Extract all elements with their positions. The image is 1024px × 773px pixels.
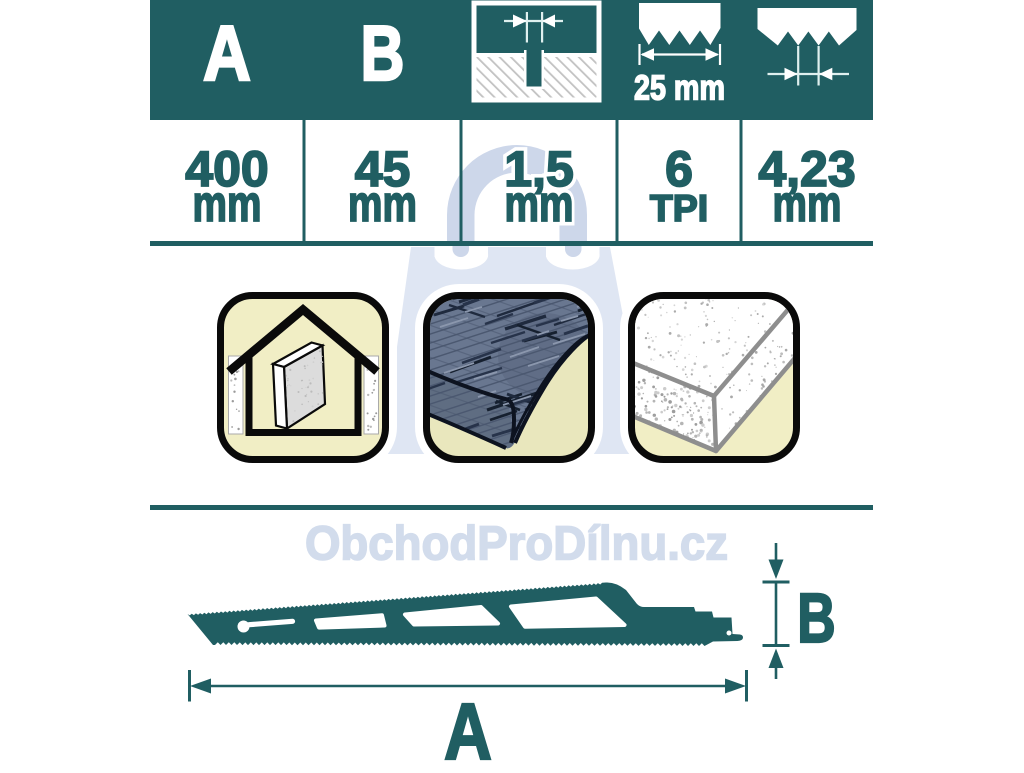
svg-text:mm: mm xyxy=(773,175,842,232)
svg-text:A: A xyxy=(203,9,251,97)
svg-text:ObchodProDílnu.cz: ObchodProDílnu.cz xyxy=(305,518,728,571)
svg-text:mm: mm xyxy=(193,175,262,232)
svg-text:mm: mm xyxy=(505,175,574,232)
svg-text:TPI: TPI xyxy=(650,187,708,229)
svg-text:25 mm: 25 mm xyxy=(634,69,725,108)
svg-text:mm: mm xyxy=(348,175,417,232)
svg-text:A: A xyxy=(444,687,492,768)
svg-text:B: B xyxy=(361,9,405,97)
svg-text:B: B xyxy=(797,579,835,657)
